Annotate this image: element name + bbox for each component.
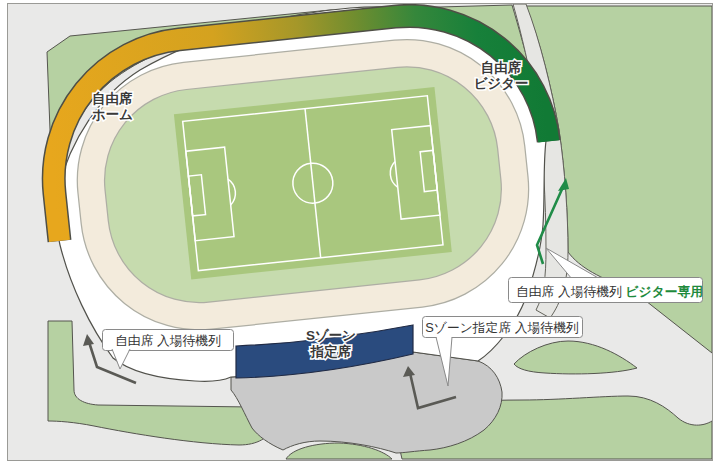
home-label-line2: ホーム	[91, 107, 133, 122]
s-zone-label-line1: Sゾーン	[306, 328, 356, 343]
stadium-access-map: 自由席 ホーム 自由席 ビジター Sゾーン 指定席 自由席 入場待機列 Sゾーン…	[0, 0, 726, 470]
callout-s-zone-queue-text: Sゾーン指定席 入場待機列	[425, 320, 578, 335]
s-zone-label-line2: 指定席	[310, 344, 352, 359]
home-section-label: 自由席 ホーム	[91, 91, 133, 122]
callout-visitor-queue-text: 自由席 入場待機列 ビジター専用	[516, 284, 703, 299]
visitor-label-line1: 自由席	[481, 60, 522, 75]
map-svg: 自由席 ホーム 自由席 ビジター Sゾーン 指定席 自由席 入場待機列 Sゾーン…	[0, 0, 726, 470]
visitor-section-label: 自由席 ビジター	[474, 60, 529, 91]
s-zone-section-label: Sゾーン 指定席	[306, 328, 356, 359]
home-label-line1: 自由席	[92, 91, 133, 106]
callout-free-queue-text: 自由席 入場待機列	[115, 333, 221, 348]
visitor-label-line2: ビジター	[474, 76, 529, 91]
